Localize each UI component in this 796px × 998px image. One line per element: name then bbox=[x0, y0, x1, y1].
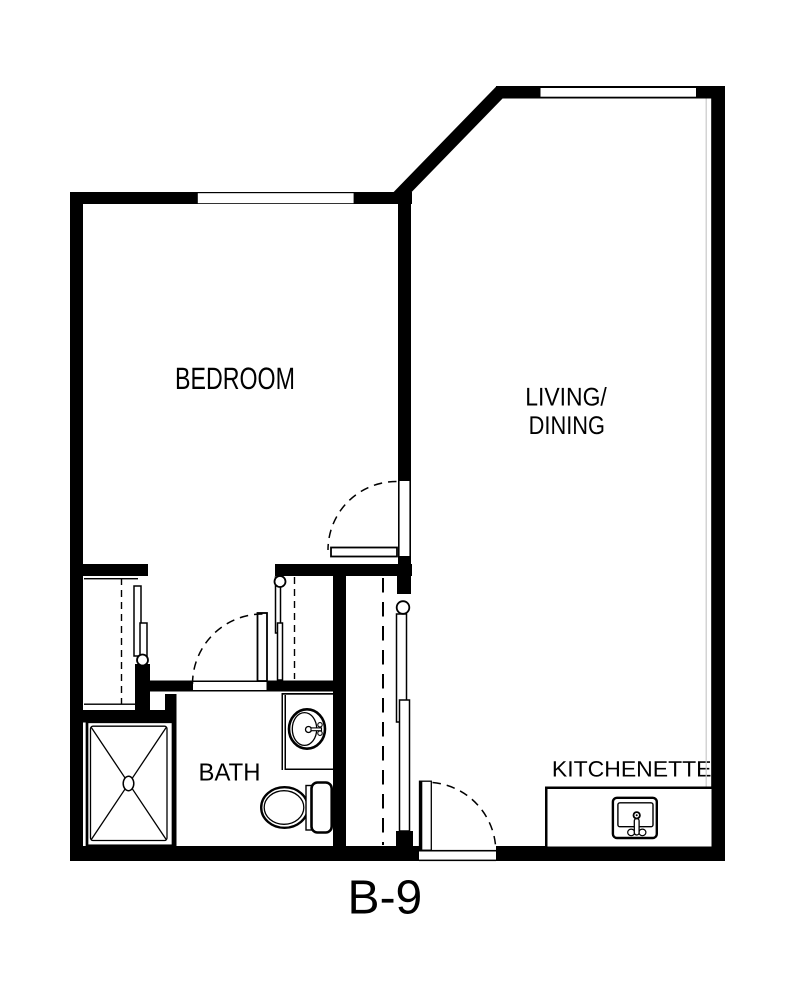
svg-text:BEDROOM: BEDROOM bbox=[175, 361, 295, 396]
svg-text:KITCHENETTE: KITCHENETTE bbox=[552, 757, 712, 782]
svg-text:B-9: B-9 bbox=[348, 871, 423, 924]
svg-text:BATH: BATH bbox=[199, 760, 261, 787]
svg-text:LIVING/: LIVING/ bbox=[525, 383, 607, 411]
svg-text:DINING: DINING bbox=[529, 412, 605, 440]
